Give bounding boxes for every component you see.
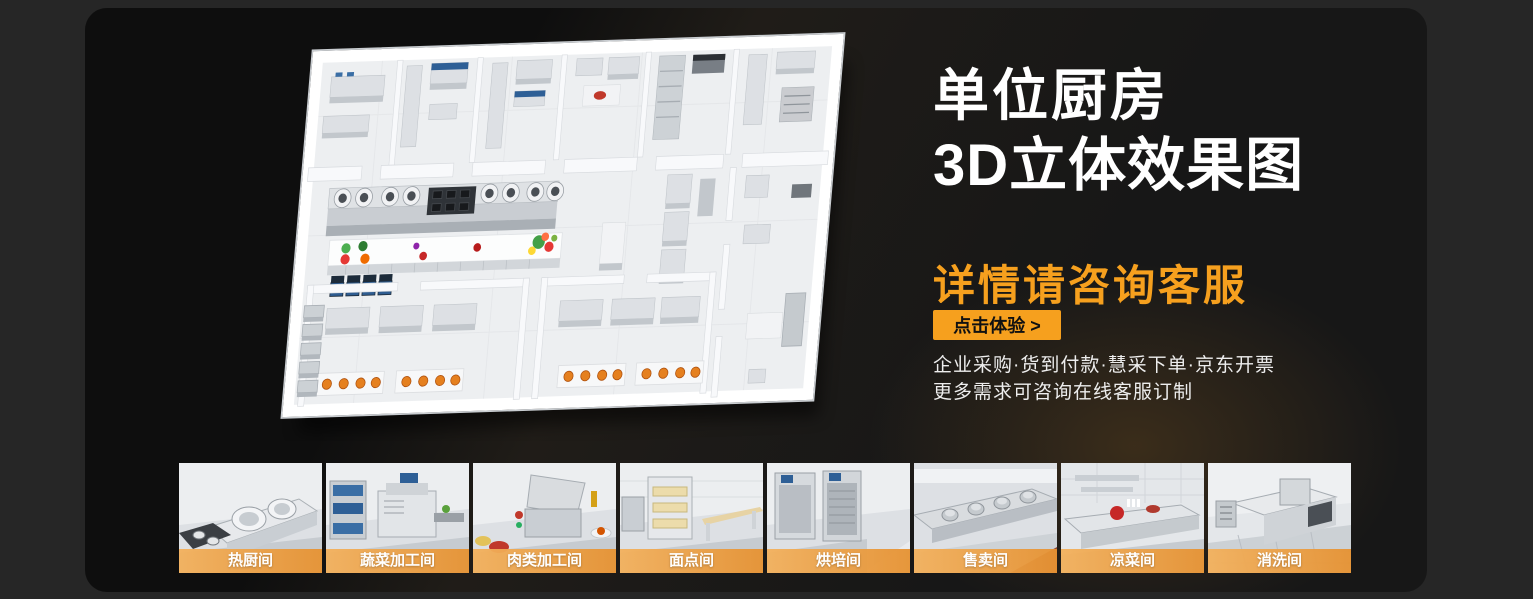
kitchen-floorplan-3d-render bbox=[228, 26, 908, 441]
thumb-sales-room[interactable]: 售卖间 bbox=[914, 463, 1057, 573]
thumb-washing-room[interactable]: 消洗间 bbox=[1208, 463, 1351, 573]
thumb-baking-room[interactable]: 烘培间 bbox=[767, 463, 910, 573]
thumb-vegetable-processing[interactable]: 蔬菜加工间 bbox=[326, 463, 469, 573]
feature-line-2: 更多需求可咨询在线客服订制 bbox=[933, 379, 1275, 406]
title-line2: 3D立体效果图 bbox=[933, 128, 1304, 204]
thumb-label: 烘培间 bbox=[767, 549, 910, 573]
thumb-cold-dish-room[interactable]: 凉菜间 bbox=[1061, 463, 1204, 573]
feature-line-1: 企业采购·货到付款·慧采下单·京东开票 bbox=[933, 352, 1275, 379]
room-thumbnails: 热厨间 蔬菜加工间 bbox=[179, 463, 1351, 573]
banner-panel: 单位厨房 3D立体效果图 详情请咨询客服 点击体验 > 企业采购·货到付款·慧采… bbox=[85, 8, 1427, 592]
subtitle: 详情请咨询客服 bbox=[933, 252, 1248, 313]
thumb-label: 热厨间 bbox=[179, 549, 322, 573]
cta-button[interactable]: 点击体验 > bbox=[933, 310, 1061, 340]
thumb-label: 售卖间 bbox=[914, 549, 1057, 573]
thumb-pastry-room[interactable]: 面点间 bbox=[620, 463, 763, 573]
thumb-label: 凉菜间 bbox=[1061, 549, 1204, 573]
thumb-label: 消洗间 bbox=[1208, 549, 1351, 573]
thumb-label: 蔬菜加工间 bbox=[326, 549, 469, 573]
thumb-meat-processing[interactable]: 肉类加工间 bbox=[473, 463, 616, 573]
promo-banner: 单位厨房 3D立体效果图 详情请咨询客服 点击体验 > 企业采购·货到付款·慧采… bbox=[0, 0, 1533, 599]
thumb-label: 肉类加工间 bbox=[473, 549, 616, 573]
feature-text: 企业采购·货到付款·慧采下单·京东开票 更多需求可咨询在线客服订制 bbox=[933, 352, 1275, 406]
title-line1: 单位厨房 bbox=[933, 64, 1304, 128]
page-title: 单位厨房 3D立体效果图 bbox=[933, 64, 1304, 204]
thumb-label: 面点间 bbox=[620, 549, 763, 573]
thumb-hot-kitchen[interactable]: 热厨间 bbox=[179, 463, 322, 573]
